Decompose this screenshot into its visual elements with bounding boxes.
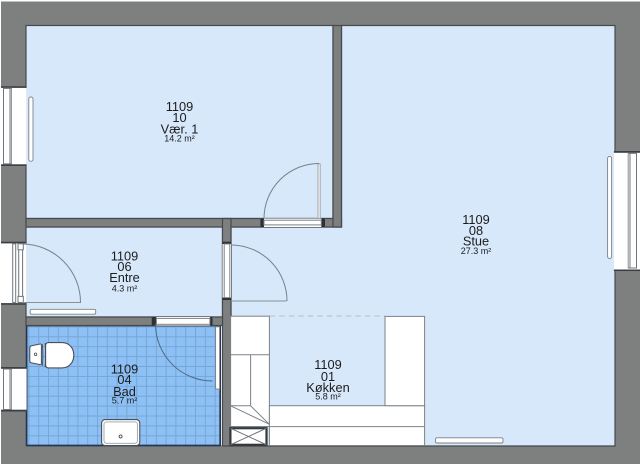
svg-text:5.7 m²: 5.7 m²: [112, 396, 138, 406]
svg-text:4.3 m²: 4.3 m²: [112, 283, 138, 293]
svg-text:5.8 m²: 5.8 m²: [315, 392, 341, 402]
svg-text:27.3 m²: 27.3 m²: [461, 246, 492, 256]
svg-text:14.2 m²: 14.2 m²: [164, 134, 195, 144]
